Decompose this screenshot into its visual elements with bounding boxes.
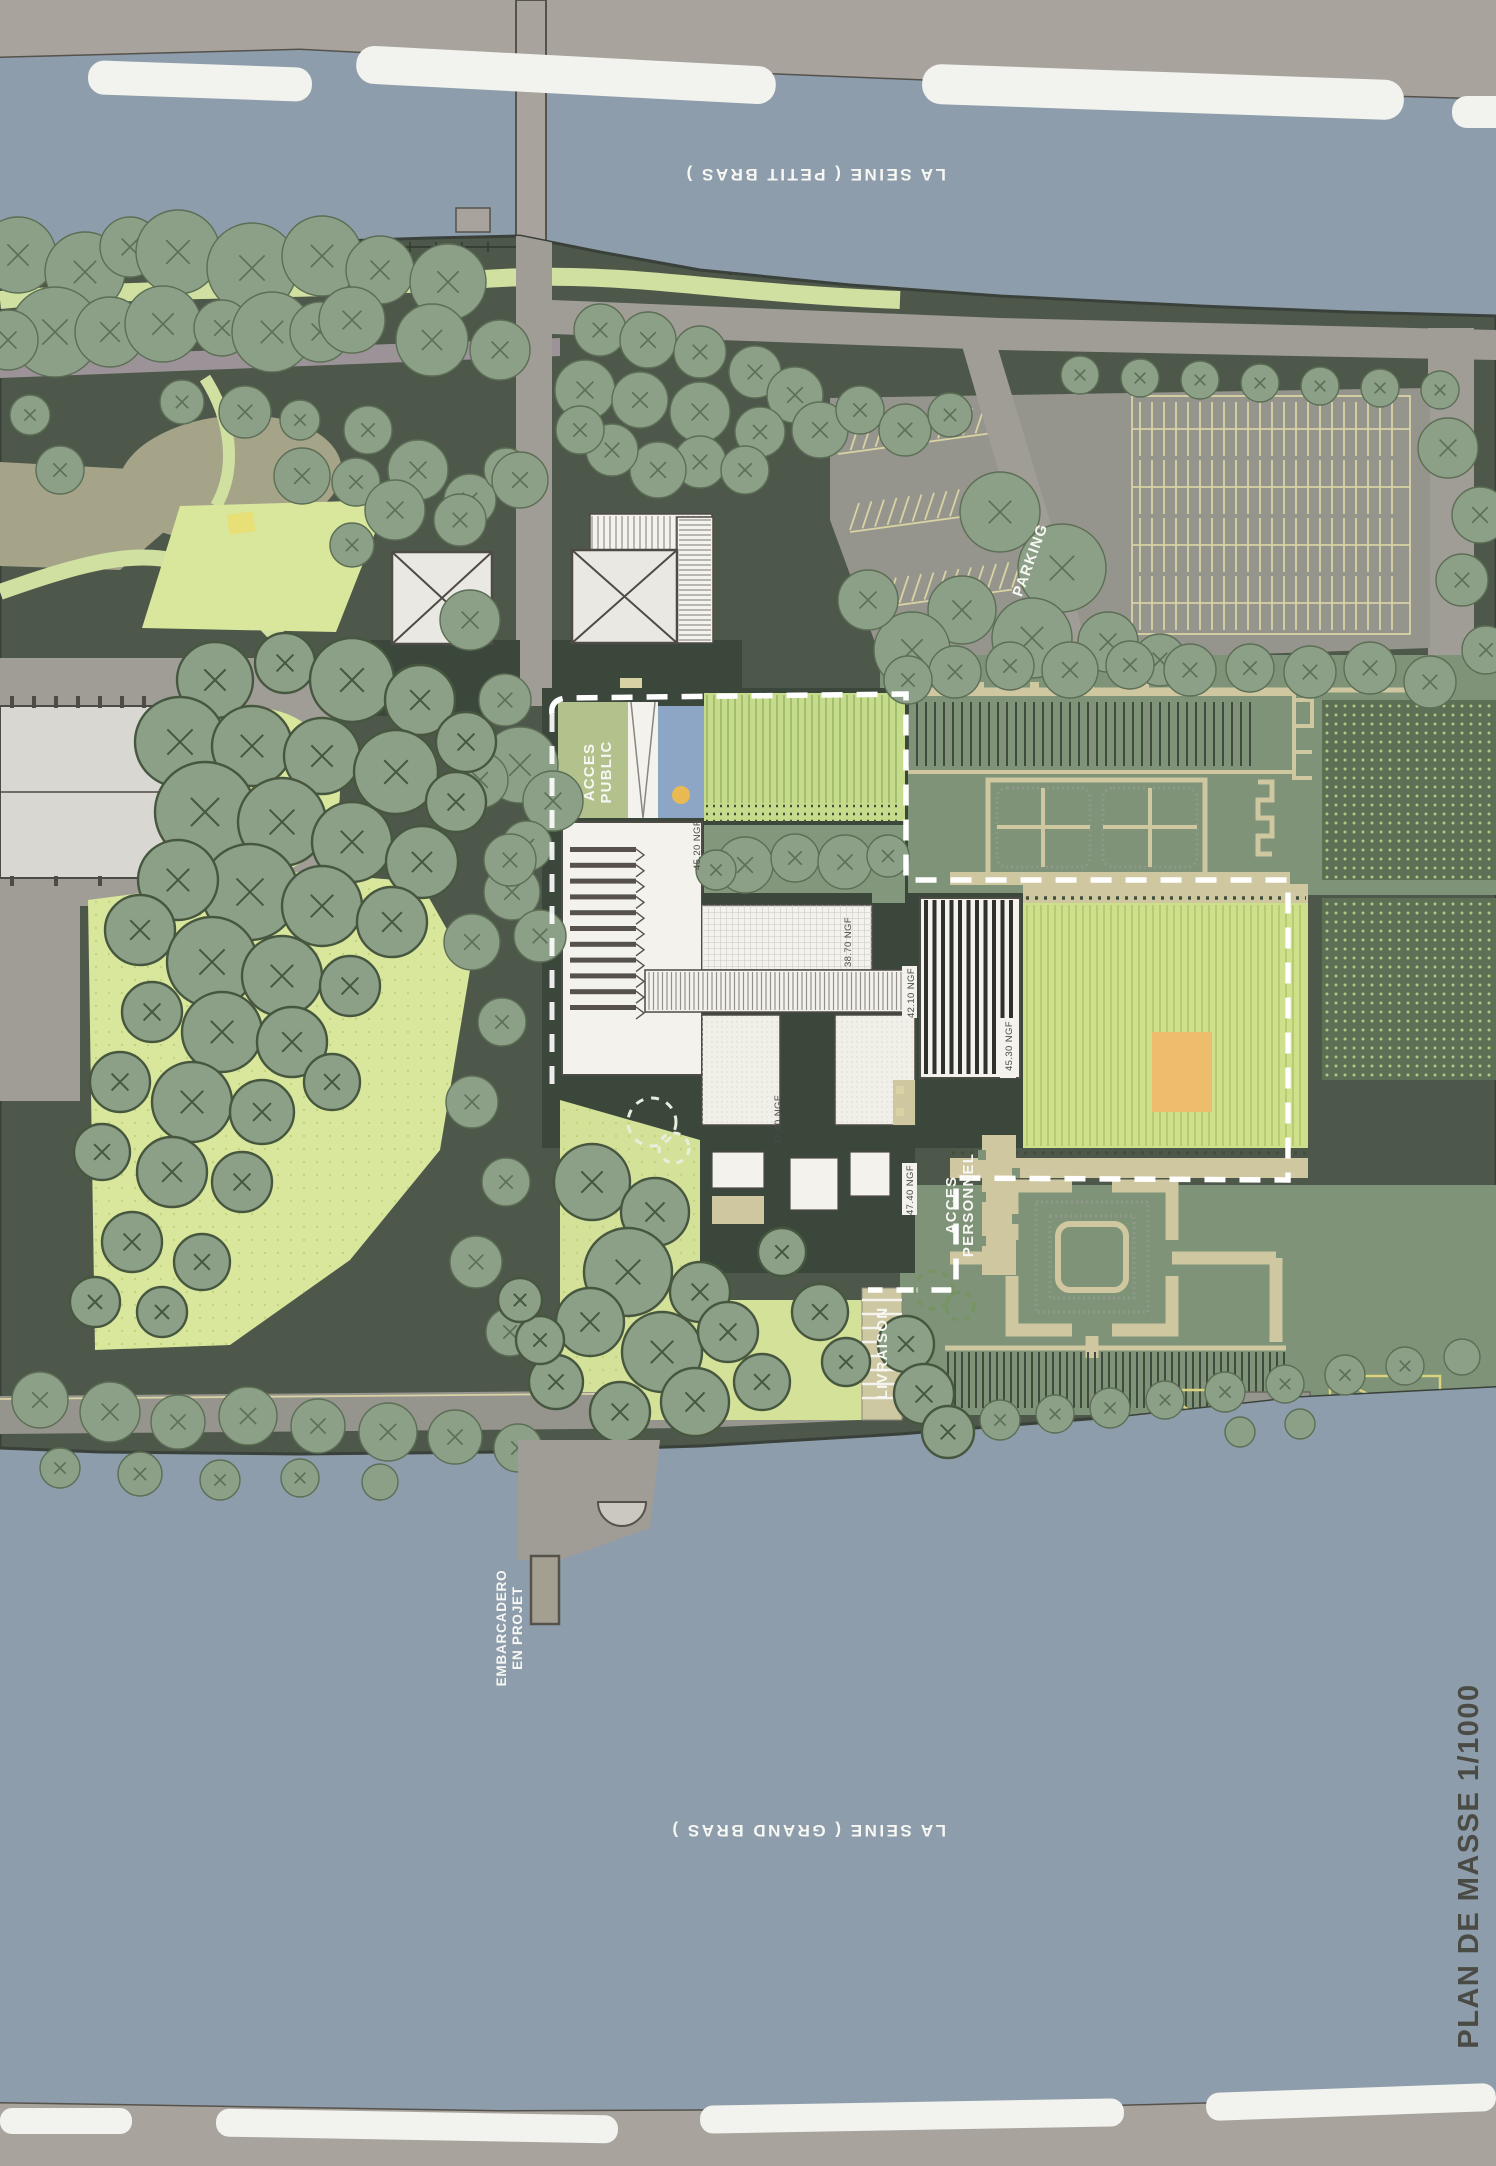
tree-icon [482, 1158, 530, 1206]
tree-icon [291, 1399, 345, 1453]
tree-icon [125, 286, 201, 362]
tree-icon [1061, 356, 1099, 394]
tree-icon [136, 210, 220, 294]
tree-icon [771, 834, 819, 882]
tree-icon [1226, 644, 1274, 692]
tree-icon [1361, 369, 1399, 407]
tree-icon [344, 406, 392, 454]
tree-icon [434, 494, 486, 546]
tree-icon [1386, 1347, 1424, 1385]
tree-icon [282, 866, 362, 946]
tree-icon [1090, 1388, 1130, 1428]
tree-icon [556, 406, 604, 454]
entry-wedge [628, 702, 658, 818]
tree-icon [1225, 1417, 1255, 1447]
tree-icon [879, 404, 931, 456]
tree-icon [554, 1144, 630, 1220]
label-ngf-4: 47.40 NGF [773, 1095, 784, 1145]
plaza-strip [0, 905, 80, 1101]
tree-icon [1418, 418, 1478, 478]
tree-icon [426, 772, 486, 832]
tree-icon [440, 590, 500, 650]
tree-icon [484, 834, 536, 886]
tree-icon [516, 1316, 564, 1364]
tree-icon [556, 1288, 624, 1356]
tree-icon [1121, 359, 1159, 397]
tree-icon [758, 1228, 806, 1276]
tree-icon [242, 936, 322, 1016]
tree-icon [1325, 1355, 1365, 1395]
tree-icon [320, 956, 380, 1016]
tree-icon [255, 633, 315, 693]
tree-icon [470, 320, 530, 380]
tree-icon [574, 304, 626, 356]
tree-icon [12, 1372, 68, 1428]
tree-icon [620, 312, 676, 368]
tree-icon [1146, 1381, 1184, 1419]
tree-icon [1404, 656, 1456, 708]
tree-icon [444, 914, 500, 970]
hall-louvered [562, 822, 702, 1075]
tree-icon [304, 1054, 360, 1110]
tree-icon [734, 1354, 790, 1410]
staff-access-path [982, 1135, 1016, 1275]
label-ngf-1: 38.70 NGF [843, 917, 854, 967]
tree-icon [219, 1387, 277, 1445]
tree-icon [436, 712, 496, 772]
tree-icon [182, 992, 262, 1072]
tree-icon [36, 446, 84, 494]
tree-icon [792, 1284, 848, 1340]
tree-icon [40, 1448, 80, 1488]
tree-icon [219, 386, 271, 438]
site-plan: LA SEINE ( PETIT BRAS ) LA SEINE ( GRAND… [0, 0, 1496, 2166]
label-embarcadero: EMBARCADEROEN PROJET [494, 1570, 525, 1687]
tree-icon [836, 386, 884, 434]
label-ngf-5: 47.40 NGF [905, 1165, 916, 1215]
pavilion-east [572, 550, 677, 643]
tree-icon [822, 1338, 870, 1386]
tree-icon [359, 1403, 417, 1461]
tree-icon [1164, 644, 1216, 696]
site-plan-drawing: LA SEINE ( PETIT BRAS ) LA SEINE ( GRAND… [0, 0, 1496, 2166]
tree-icon [70, 1277, 120, 1327]
tree-icon [867, 835, 909, 877]
label-livraison: LIVRAISON [874, 1307, 891, 1399]
label-seine-petit-bras: LA SEINE ( PETIT BRAS ) [684, 165, 946, 184]
tree-icon [151, 1395, 205, 1449]
north-bank-structure [456, 208, 490, 232]
hall-south-west [702, 1015, 780, 1125]
tree-icon [200, 1460, 240, 1500]
tree-icon [118, 1452, 162, 1496]
tree-icon [1444, 1339, 1480, 1375]
label-acces-public: ACCESPUBLIC [581, 740, 615, 803]
tree-icon [1042, 642, 1098, 698]
tree-icon [1106, 641, 1154, 689]
tree-icon [698, 1302, 758, 1362]
label-seine-grand-bras: LA SEINE ( GRAND BRAS ) [670, 1821, 946, 1840]
tree-icon [80, 1382, 140, 1442]
tree-icon [319, 287, 385, 353]
tree-icon [590, 1382, 650, 1442]
tree-icon [661, 1368, 729, 1436]
tree-icon [105, 895, 175, 965]
tree-icon [90, 1052, 150, 1112]
water-basin [658, 706, 704, 818]
tree-icon [1205, 1372, 1245, 1412]
tree-icon [137, 1287, 187, 1337]
tree-icon [160, 380, 204, 424]
tree-icon [281, 1459, 319, 1497]
tree-icon [818, 835, 872, 889]
tree-icon [514, 910, 566, 962]
tree-icon [1301, 367, 1339, 405]
tree-icon [1284, 646, 1336, 698]
tree-icon [122, 982, 182, 1042]
tree-icon [212, 1152, 272, 1212]
tree-icon [1344, 642, 1396, 694]
tree-icon [102, 1212, 162, 1272]
tree-icon [450, 1236, 502, 1288]
label-ngf-3: 45.30 NGF [1004, 1021, 1015, 1071]
tree-icon [74, 1124, 130, 1180]
label-ngf-2: 42.10 NGF [906, 968, 917, 1018]
tree-icon [612, 372, 668, 428]
tree-icon [280, 400, 320, 440]
bridge [516, 0, 546, 252]
tree-icon [428, 1410, 482, 1464]
tree-icon [670, 382, 730, 442]
drawing-title: PLAN DE MASSE 1/1000 [1453, 1683, 1485, 2048]
tree-icon [1421, 371, 1459, 409]
tree-icon [365, 480, 425, 540]
tree-icon [1036, 1395, 1074, 1433]
tree-icon [1241, 364, 1279, 402]
tree-icon [838, 570, 898, 630]
tree-icon [274, 448, 330, 504]
roof-striped [645, 970, 915, 1012]
tree-icon [922, 1406, 974, 1458]
tree-icon [362, 1464, 398, 1500]
roof-garden [704, 693, 905, 821]
field-marker [1152, 1032, 1212, 1112]
tree-icon [396, 304, 468, 376]
tree-icon [10, 395, 50, 435]
tree-icon [357, 887, 427, 957]
tree-icon [330, 523, 374, 567]
pier [531, 1556, 559, 1624]
tree-icon [174, 1234, 230, 1290]
game-court [227, 511, 256, 534]
tree-icon [310, 638, 394, 722]
tree-icon [980, 1400, 1020, 1440]
tree-icon [674, 326, 726, 378]
tree-icon [492, 452, 548, 508]
tree-icon [1266, 1365, 1304, 1403]
tree-icon [986, 642, 1034, 690]
tree-icon [478, 998, 526, 1046]
tree-icon [446, 1076, 498, 1128]
tree-icon [498, 1278, 542, 1322]
tree-icon [928, 393, 972, 437]
tree-icon [152, 1062, 232, 1142]
label-ngf-0: 45.20 NGF [692, 820, 703, 870]
tree-icon [721, 446, 769, 494]
tree-icon [929, 646, 981, 698]
tree-icon [137, 1137, 207, 1207]
tree-icon [1181, 361, 1219, 399]
tree-icon [1436, 554, 1488, 606]
tree-icon [1285, 1409, 1315, 1439]
tree-icon [479, 674, 531, 726]
tree-icon [230, 1080, 294, 1144]
